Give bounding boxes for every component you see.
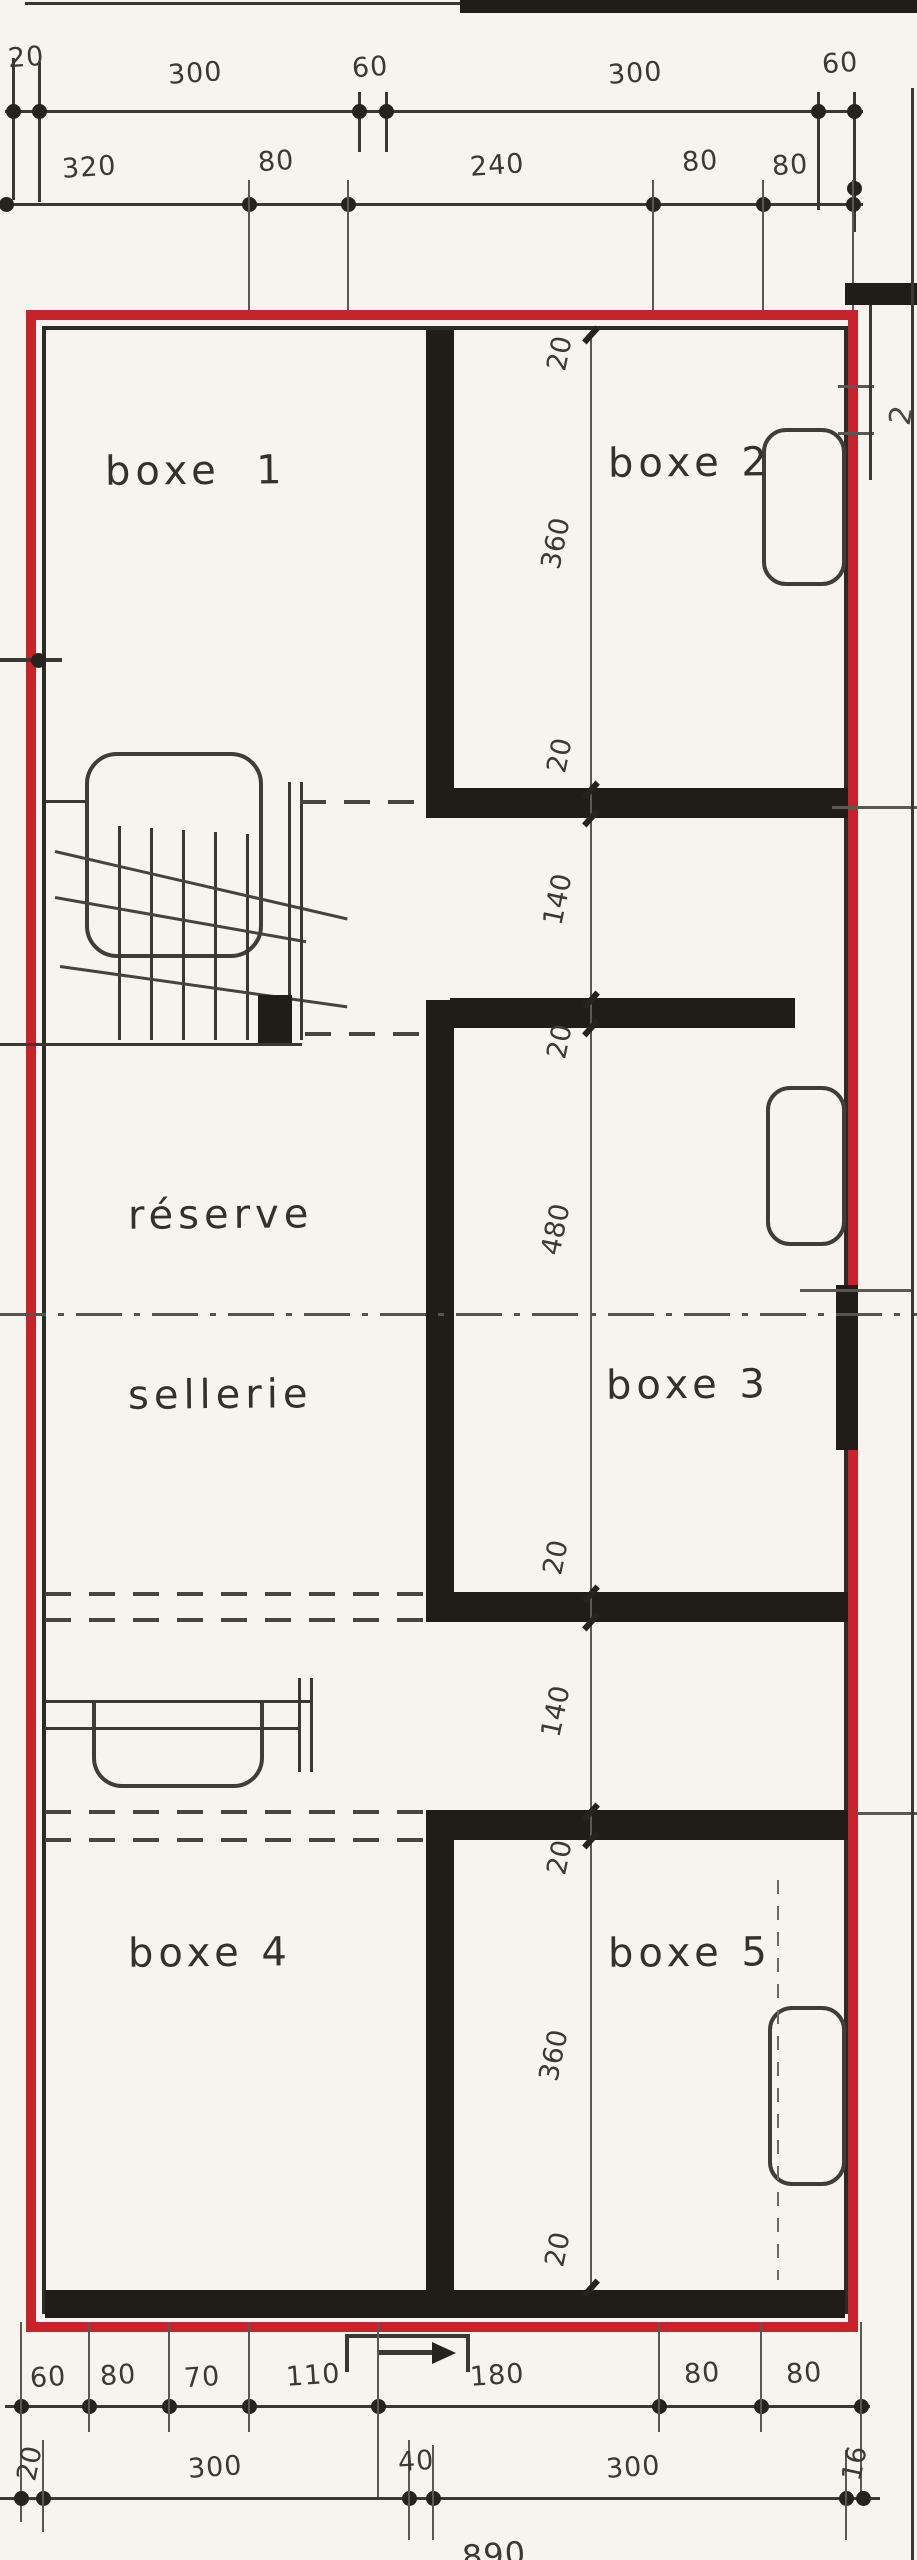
ext-line: [248, 2322, 250, 2432]
room-label-boxe4: boxe 4: [128, 1929, 292, 1976]
dim-label: 60: [821, 47, 859, 80]
stair-step: [150, 828, 153, 1040]
corridor-dash: [45, 1810, 426, 1814]
opening-dash: [305, 1032, 426, 1036]
dim-label: 110: [285, 2358, 342, 2393]
dim-label: 60: [351, 51, 389, 84]
right-pier: [836, 1285, 858, 1450]
spine-wall: [426, 1810, 454, 2292]
dim-label: 80: [683, 2357, 721, 2390]
entrance-bracket: [345, 2334, 349, 2372]
dim-label: 300: [167, 56, 224, 91]
dim-label: 20: [7, 41, 45, 74]
dim-label: 300: [607, 56, 664, 91]
dim-line: [5, 110, 863, 113]
corridor-dash: [45, 1838, 426, 1842]
dim-line: [5, 2405, 870, 2408]
axis-stub: [832, 806, 917, 809]
wall-bottom: [45, 2290, 845, 2318]
dim-label: 180: [469, 2358, 526, 2393]
spine-wall: [426, 1000, 454, 1622]
door-jamb: [310, 1678, 313, 1772]
ext-line: [652, 180, 654, 312]
room-label-boxe3: boxe 3: [606, 1361, 770, 1408]
stair-newel: [300, 782, 303, 1040]
dim-tick: [32, 104, 47, 119]
dim-label: 300: [605, 2450, 662, 2485]
dim-label: 80: [99, 2359, 137, 2392]
ext-line: [12, 58, 15, 200]
dim-tick: [379, 104, 394, 119]
left-tick-dot: [31, 653, 46, 668]
ext-line: [168, 2322, 170, 2432]
opening-dash: [300, 800, 426, 804]
wall-boxe3-top: [450, 998, 795, 1028]
ext-line: [248, 180, 250, 312]
ext-line: [760, 2322, 762, 2432]
dim-label: 300: [187, 2450, 244, 2485]
dim-label: 70: [183, 2361, 221, 2394]
dim-tick: [811, 104, 826, 119]
corridor-dash: [45, 1618, 426, 1622]
door-jamb: [869, 305, 872, 480]
dim-tick: [6, 104, 21, 119]
ext-line: [385, 92, 388, 152]
room-label-boxe5: boxe 5: [608, 1929, 772, 1976]
door-lintel-line: [45, 1700, 310, 1703]
wall-boxe5-top: [450, 1810, 848, 1840]
ext-line: [358, 92, 361, 152]
dim-tick: [0, 197, 14, 212]
dim-label: 890: [461, 2534, 528, 2560]
corridor-dash: [45, 1592, 426, 1596]
stair-step: [214, 832, 217, 1040]
dim-label: 80: [785, 2357, 823, 2390]
trough-dash: [777, 1880, 779, 2280]
entrance-arrow-shaft: [378, 2350, 432, 2355]
wall-boxe2-bottom: [450, 788, 848, 818]
axis-stub: [800, 1289, 912, 1292]
stair-hall-line: [58, 1043, 302, 1046]
dim-tick: [352, 104, 367, 119]
dim-label: 80: [771, 149, 809, 182]
room-label-sellerie: sellerie: [128, 1371, 313, 1419]
ext-line: [377, 2322, 379, 2500]
wall-boxe3-bottom: [450, 1592, 848, 1622]
entrance-arrow-head: [432, 2342, 456, 2364]
dim-label: 320: [61, 150, 118, 185]
door-boxe2: [762, 428, 846, 586]
door-boxe3: [766, 1086, 846, 1246]
left-tick: [0, 1043, 58, 1046]
axis-stub: [856, 1812, 917, 1815]
right-edge-line: [911, 88, 914, 2560]
floor-plan: 20 300 60 300 60 320 80 240 80 80: [0, 0, 917, 2560]
door-boxe4: [92, 1702, 264, 1788]
entrance-bracket: [345, 2334, 470, 2338]
dim-label: 60: [29, 2361, 67, 2394]
room-label-boxe1: boxe 1: [105, 447, 287, 495]
neighbour-wall-stub: [845, 283, 917, 305]
spine-wall: [426, 330, 454, 818]
dim-tick: [847, 104, 862, 119]
dim-line: [5, 203, 863, 206]
dim-label: 16: [832, 2421, 879, 2506]
stair-wall-stub: [258, 995, 292, 1043]
door-lintel-line: [45, 1727, 300, 1730]
dim-chain-line: [590, 333, 592, 2290]
ext-line: [88, 2322, 90, 2432]
ext-line: [347, 180, 349, 312]
ext-line: [762, 180, 764, 312]
door-jamb: [298, 1678, 301, 1772]
edge-text-fragment: 2: [883, 403, 917, 428]
dim-label: 80: [257, 145, 295, 178]
axis-line: [0, 1313, 917, 1316]
dim-label: 40: [397, 2445, 435, 2478]
room-label-boxe2: boxe 2: [608, 439, 772, 486]
dim-label: 80: [681, 145, 719, 178]
door-boxe5: [768, 2006, 846, 2186]
top-wall-band: [460, 0, 917, 13]
ext-line: [38, 62, 41, 202]
room-label-reserve: réserve: [128, 1191, 314, 1239]
ext-line: [658, 2322, 660, 2432]
dim-label: 240: [469, 148, 526, 183]
stair-step: [118, 826, 121, 1040]
dim-tick: [847, 181, 862, 196]
boxe1-front-line: [45, 800, 85, 803]
stair-step: [182, 830, 185, 1040]
stair-step: [246, 834, 249, 1040]
